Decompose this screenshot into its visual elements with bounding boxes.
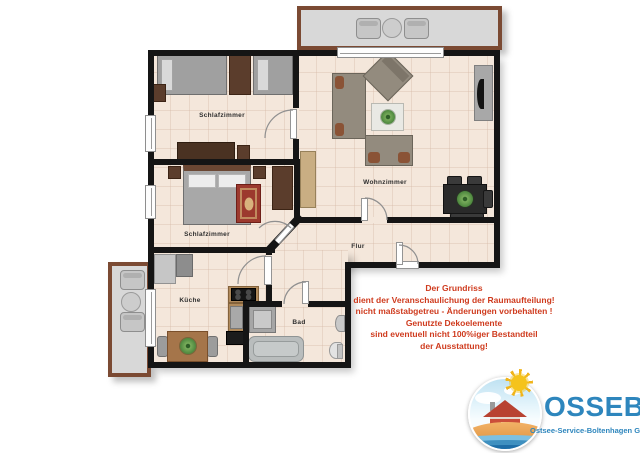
wall xyxy=(148,247,275,253)
kitchen-sink xyxy=(230,306,243,329)
door-living xyxy=(361,198,368,221)
wall xyxy=(494,50,500,268)
single-bed xyxy=(253,55,293,95)
room-label-bedroom2: Schlafzimmer xyxy=(157,231,257,238)
bathtub xyxy=(248,336,304,362)
window-bedroom2 xyxy=(145,185,156,219)
plant-icon xyxy=(457,191,473,207)
door-kitchen xyxy=(264,256,272,285)
room-label-bathroom: Bad xyxy=(249,319,349,326)
loveseat xyxy=(365,135,413,166)
floor-plan-canvas: Schlafzimmer Schlafzimmer Wohnzimmer Flu… xyxy=(0,0,640,453)
wall xyxy=(148,50,300,56)
dresser xyxy=(229,55,251,95)
window-bedroom1 xyxy=(145,115,156,152)
door-bedroom1 xyxy=(290,109,297,139)
wall xyxy=(345,262,500,268)
tall-cabinet xyxy=(300,151,316,208)
balcony-round-table xyxy=(121,292,141,312)
disclaimer-line: Genutzte Dekoelemente xyxy=(340,318,568,330)
nightstand xyxy=(168,166,181,179)
disclaimer-text: Der Grundriss dient der Veranschaulichun… xyxy=(340,283,568,352)
wall xyxy=(148,159,300,165)
room-label-kitchen: Küche xyxy=(140,297,240,304)
room-label-bedroom1: Schlafzimmer xyxy=(172,112,272,119)
kitchen-cabinet xyxy=(176,254,193,277)
kitchen-chair xyxy=(207,336,218,357)
sofa xyxy=(332,73,366,139)
balcony-chair xyxy=(120,270,145,290)
balcony-slider-living xyxy=(337,47,444,58)
wall xyxy=(148,362,351,368)
balcony-chair xyxy=(404,18,429,39)
oriental-rug xyxy=(236,184,261,223)
plant-icon xyxy=(180,338,196,354)
dining-chair xyxy=(483,190,493,208)
wall xyxy=(294,217,500,223)
nightstand xyxy=(253,166,266,179)
room-label-hallway: Flur xyxy=(308,243,408,250)
logo-subtitle: Ostsee-Service-Boltenhagen GmbH xyxy=(530,426,640,435)
wardrobe xyxy=(272,166,293,210)
company-logo: OSSEBO Ostsee-Service-Boltenhagen GmbH xyxy=(466,374,640,453)
room-label-living: Wohnzimmer xyxy=(335,179,435,186)
disclaimer-line: sind eventuell nicht 100%iger Bestandtei… xyxy=(340,329,568,341)
fridge xyxy=(154,254,176,284)
nightstand xyxy=(152,84,166,102)
wall xyxy=(243,301,249,368)
tv-icon xyxy=(477,79,484,109)
disclaimer-line: Der Grundriss xyxy=(340,283,568,295)
balcony-round-table xyxy=(382,18,402,38)
desk-chair xyxy=(237,145,250,160)
waves-icon xyxy=(468,445,542,451)
plant-icon xyxy=(381,110,395,124)
disclaimer-line: nicht maßstabgetreu - Änderungen vorbeha… xyxy=(340,306,568,318)
wall xyxy=(294,165,300,223)
disclaimer-line: dient der Veranschaulichung der Raumauft… xyxy=(340,295,568,307)
balcony-chair xyxy=(356,18,381,39)
sun-icon xyxy=(511,375,527,391)
door-bathroom xyxy=(302,281,309,304)
logo-brand: OSSEBO xyxy=(544,391,640,423)
disclaimer-line: der Ausstattung! xyxy=(340,341,568,353)
single-bed xyxy=(157,55,227,95)
roof-icon xyxy=(483,400,527,417)
balcony-chair xyxy=(120,312,145,332)
